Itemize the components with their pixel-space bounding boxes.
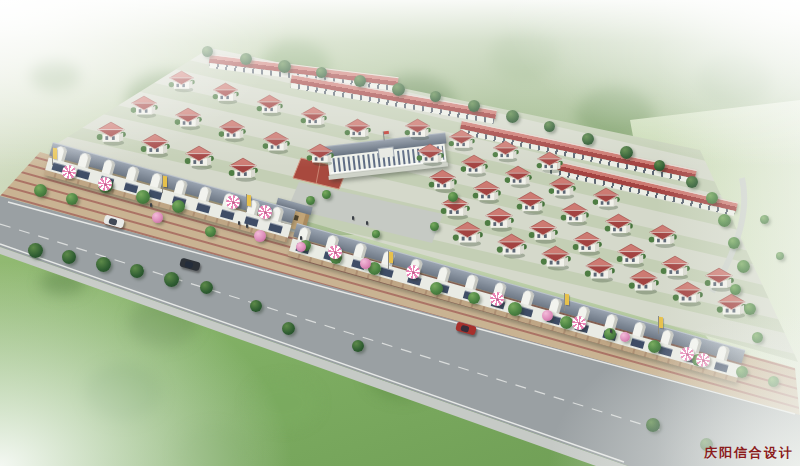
tree: [278, 60, 291, 73]
striped-umbrella: [258, 205, 272, 219]
villa-house: [504, 166, 532, 189]
tree: [354, 75, 366, 87]
tree: [172, 200, 185, 213]
tree: [718, 214, 731, 227]
villa-house: [256, 95, 283, 117]
tree: [508, 302, 522, 316]
villa-house: [306, 144, 334, 167]
ground-shapes: [0, 0, 800, 466]
villa-house: [628, 270, 659, 295]
yellow-banner: [562, 293, 568, 311]
yellow-banner: [160, 175, 166, 193]
tree: [646, 418, 660, 432]
pedestrian: [238, 221, 240, 225]
villa-house: [140, 134, 170, 159]
villa-house: [484, 208, 514, 233]
tree: [430, 282, 443, 295]
banner-flag: [659, 317, 663, 329]
striped-umbrella: [98, 177, 112, 191]
tree: [240, 53, 252, 65]
central-building-portico: [378, 146, 395, 158]
tree: [322, 190, 331, 199]
pedestrian: [246, 224, 248, 228]
tree: [136, 190, 150, 204]
tree: [130, 264, 144, 278]
tree: [752, 332, 763, 343]
tree: [66, 193, 78, 205]
striped-umbrella: [226, 195, 240, 209]
tree: [736, 366, 748, 378]
tree: [200, 281, 213, 294]
villa-house: [572, 232, 602, 257]
banner-flag: [247, 195, 251, 207]
flowering-tree: [296, 242, 306, 252]
pedestrian: [610, 329, 612, 333]
villa-house: [460, 155, 488, 178]
tree: [430, 91, 441, 102]
striped-umbrella: [490, 292, 504, 306]
tree: [648, 340, 661, 353]
villa-house: [228, 158, 258, 183]
watermark-text: 庆阳信合设计: [704, 444, 794, 462]
villa-house: [560, 203, 589, 227]
flowering-tree: [542, 310, 553, 321]
banner-flag: [53, 148, 57, 160]
tree: [282, 322, 295, 335]
villa-house: [540, 246, 571, 271]
tree: [620, 146, 633, 159]
tree: [706, 192, 718, 204]
tree: [372, 230, 380, 238]
villa-house: [168, 71, 195, 93]
tree: [728, 237, 740, 249]
tree: [306, 196, 315, 205]
banner-flag: [389, 252, 393, 264]
villa-house: [716, 294, 747, 319]
villa-house: [184, 146, 214, 171]
yellow-banner: [386, 251, 392, 269]
tree: [352, 340, 364, 352]
tree: [737, 260, 750, 273]
striped-umbrella: [406, 265, 420, 279]
villa-house: [404, 119, 431, 141]
tree: [448, 192, 458, 202]
villa-house: [262, 132, 290, 155]
villa-house: [660, 256, 690, 281]
villa-house: [672, 282, 703, 307]
tree: [654, 160, 665, 171]
villa-house: [616, 244, 646, 269]
tree: [202, 46, 213, 57]
tree: [730, 284, 741, 295]
villa-house: [536, 152, 563, 174]
tree: [468, 292, 480, 304]
striped-umbrella: [680, 347, 694, 361]
villa-house: [218, 120, 246, 143]
villa-house: [212, 83, 239, 105]
tree: [768, 376, 779, 387]
tree: [28, 243, 43, 258]
tree: [430, 222, 439, 231]
striped-umbrella: [328, 245, 342, 259]
villa-house: [472, 181, 501, 205]
tree: [776, 252, 784, 260]
tree: [582, 133, 594, 145]
striped-umbrella: [572, 316, 586, 330]
villa-house: [96, 122, 126, 147]
striped-umbrella: [696, 353, 710, 367]
yellow-banner: [244, 194, 250, 212]
villa-house: [492, 141, 519, 163]
villa-house: [548, 177, 576, 200]
tree: [468, 100, 480, 112]
tree: [250, 300, 262, 312]
pedestrian: [150, 203, 152, 207]
tree: [506, 110, 519, 123]
villa-house: [344, 119, 371, 141]
banner-flag: [163, 176, 167, 188]
tree: [760, 215, 769, 224]
villa-house: [130, 96, 158, 119]
villa-house: [496, 234, 527, 259]
villa-house: [528, 220, 558, 245]
rendering-canvas: 庆阳信合设计: [0, 0, 800, 466]
villa-house: [428, 170, 457, 194]
tree: [544, 121, 555, 132]
pedestrian: [300, 236, 302, 240]
villa-house: [448, 130, 475, 152]
flowering-tree: [152, 212, 163, 223]
yellow-banner: [656, 316, 662, 334]
villa-house: [604, 214, 633, 238]
banner-flag: [565, 294, 569, 306]
villa-house: [592, 188, 620, 211]
tree: [62, 250, 76, 264]
villa-house: [452, 222, 483, 247]
yellow-banner: [50, 147, 56, 165]
tree: [392, 83, 405, 96]
tree: [205, 226, 216, 237]
tree: [96, 257, 111, 272]
tree: [744, 303, 756, 315]
tree: [164, 272, 179, 287]
flowering-tree: [360, 258, 371, 269]
villa-house: [584, 258, 615, 283]
pedestrian: [366, 221, 368, 225]
tree: [34, 184, 47, 197]
flowering-tree: [620, 332, 630, 342]
villa-house: [300, 107, 327, 129]
villa-house: [648, 225, 677, 249]
pedestrian: [352, 216, 354, 220]
tree: [316, 67, 327, 78]
villa-house: [174, 108, 202, 131]
flowering-tree: [254, 230, 266, 242]
villa-house: [416, 144, 444, 167]
tree: [686, 176, 698, 188]
villa-house: [516, 192, 545, 216]
striped-umbrella: [62, 165, 76, 179]
